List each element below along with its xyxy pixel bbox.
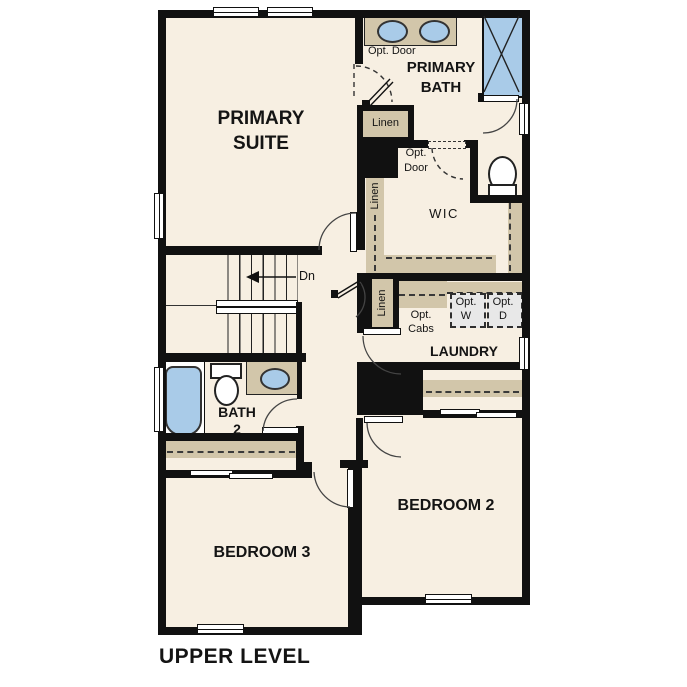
room-label-bath2: BATH 2	[197, 404, 277, 438]
linen-label-wic: Linen	[369, 166, 381, 226]
wall	[158, 353, 306, 362]
room-label-bedroom3: BEDROOM 3	[182, 544, 342, 562]
sink-icon	[377, 20, 408, 43]
window	[267, 7, 313, 17]
linen-label-hall: Linen	[376, 273, 388, 333]
window	[154, 193, 164, 239]
stairs-down-label: Dn	[299, 269, 315, 283]
window	[425, 594, 472, 604]
room-label-line: SUITE	[161, 131, 361, 156]
window	[519, 103, 529, 135]
wall	[160, 246, 322, 255]
label-line: Opt.	[391, 308, 451, 322]
room-label-line: PRIMARY	[161, 106, 361, 131]
room-label-line: BATH	[197, 404, 277, 421]
stairs-landing-rail	[216, 307, 298, 314]
room-label-wic: WIC	[424, 206, 464, 221]
label-line: D	[487, 309, 519, 323]
label-line: Opt.	[450, 295, 482, 309]
room-label-primary-bath: PRIMARY BATH	[391, 58, 491, 98]
opt-dryer-label: Opt. D	[487, 295, 519, 323]
wic-rod-line-right	[509, 203, 511, 271]
wall	[522, 10, 530, 605]
page-title: UPPER LEVEL	[159, 645, 310, 669]
stairs-landing-rail	[216, 300, 298, 307]
opt-cabs-label: Opt. Cabs	[391, 308, 451, 336]
window	[197, 624, 244, 634]
opt-cabs-dash-line	[399, 294, 445, 296]
label-line: Cabs	[391, 322, 451, 336]
opt-door-label-wic: Opt. Door	[396, 146, 436, 176]
room-label-laundry: LAUNDRY	[414, 343, 514, 359]
wall-chase	[357, 370, 423, 415]
label-line: Opt.	[396, 146, 436, 161]
bypass-door-bedroom2-closet	[476, 412, 517, 418]
room-label-bedroom2: BEDROOM 2	[366, 497, 526, 515]
wall	[298, 462, 312, 478]
door-leaf-bedroom3	[347, 469, 354, 508]
room-label-primary-suite: PRIMARY SUITE	[161, 106, 361, 156]
wall	[357, 273, 372, 333]
wall-door-hinge	[362, 100, 370, 108]
room-label-line: PRIMARY	[391, 58, 491, 78]
floor-plan: PRIMARY SUITE PRIMARY BATH Opt. Door Lin…	[0, 0, 687, 687]
stairs-upper-flight	[217, 253, 298, 301]
wall	[340, 460, 368, 468]
bedroom2-closet-shelf	[423, 380, 522, 397]
stairs-landing-edge	[165, 305, 217, 306]
window	[213, 7, 259, 17]
wall	[356, 418, 363, 462]
window	[154, 367, 164, 432]
opt-washer-label: Opt. W	[450, 295, 482, 323]
wall	[158, 627, 356, 635]
wall	[297, 362, 302, 399]
room-label-line: 2	[197, 421, 277, 438]
opt-door-label-primary-bath: Opt. Door	[368, 45, 416, 57]
wall	[158, 10, 166, 635]
stairs-lower-flight	[217, 313, 298, 354]
wall	[357, 362, 530, 370]
label-line: W	[450, 309, 482, 323]
door-leaf-primary-suite	[350, 212, 357, 252]
wall	[357, 177, 365, 250]
sink-icon	[419, 20, 450, 43]
bedroom2-rod-line	[426, 391, 519, 393]
wall	[470, 140, 478, 200]
window	[519, 337, 529, 370]
bypass-door-bedroom2-closet	[440, 409, 480, 415]
wall	[296, 302, 302, 362]
bypass-door-bedroom3-closet	[190, 470, 233, 476]
wall	[470, 195, 522, 203]
bedroom3-rod-line	[167, 451, 295, 453]
sink-icon	[260, 368, 290, 390]
wall-door-hinge	[331, 290, 338, 298]
linen-label-primary-bath: Linen	[363, 117, 408, 129]
label-line: Door	[396, 161, 436, 176]
door-leaf-bedroom2	[364, 416, 403, 423]
label-line: Opt.	[487, 295, 519, 309]
bedroom3-closet-shelf	[164, 441, 298, 458]
wall	[355, 12, 363, 64]
room-label-line: BATH	[391, 78, 491, 98]
toilet-icon	[214, 375, 239, 406]
wic-rod-line-bottom	[386, 257, 492, 259]
bypass-door-bedroom3-closet	[229, 473, 273, 479]
